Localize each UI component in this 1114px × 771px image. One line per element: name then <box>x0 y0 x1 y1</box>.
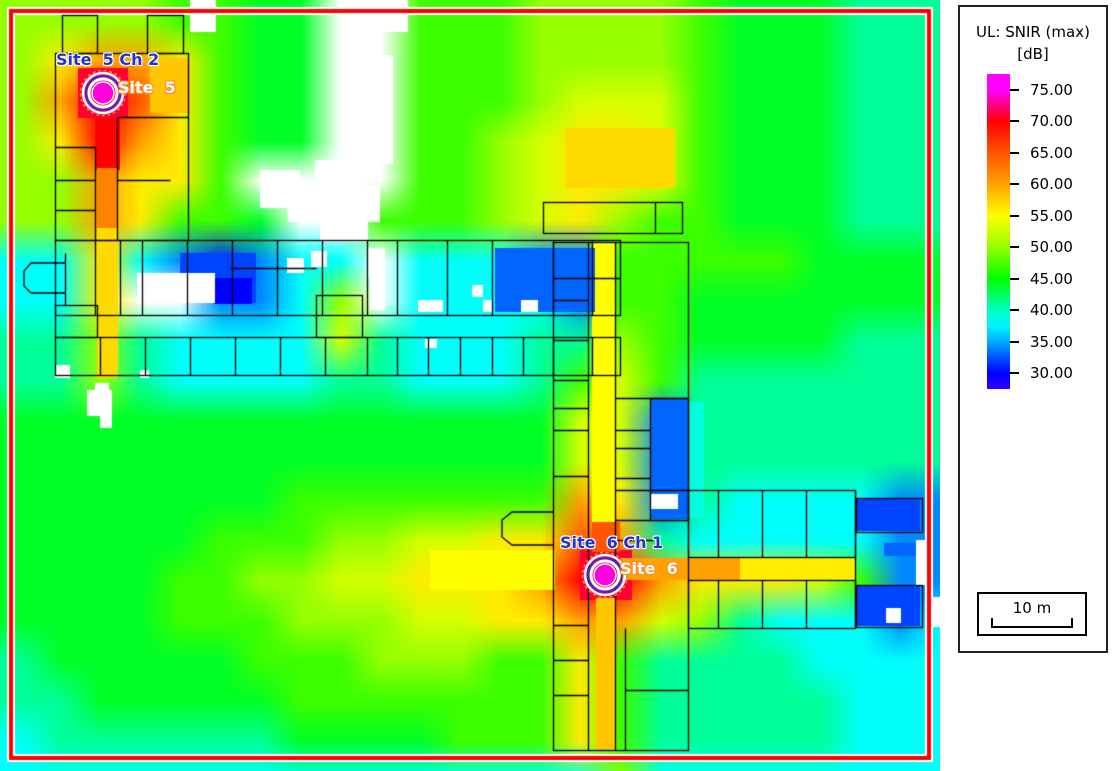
legend-tick-label: 70.00 <box>1030 112 1090 130</box>
legend-tick-mark <box>1010 309 1019 311</box>
legend-tick-mark <box>1010 89 1019 91</box>
legend-title: UL: SNIR (max) <box>960 23 1106 41</box>
legend-tick-mark <box>1010 183 1019 185</box>
scale-bar-label: 10 m <box>979 599 1085 617</box>
legend-tick-mark <box>1010 215 1019 217</box>
scale-bar-box: 10 m <box>977 592 1087 636</box>
legend-units: [dB] <box>960 45 1106 63</box>
legend-tick-label: 45.00 <box>1030 270 1090 288</box>
site-6-channel-label: Site 6 Ch 1 <box>560 535 663 551</box>
legend-panel: UL: SNIR (max) [dB] 75.0070.0065.0060.00… <box>958 5 1108 653</box>
coverage-heatmap-canvas[interactable] <box>0 0 940 771</box>
site-6-name-label: Site 6 <box>620 561 678 577</box>
legend-tick-mark <box>1010 120 1019 122</box>
legend-tick-label: 55.00 <box>1030 207 1090 225</box>
legend-tick-mark <box>1010 278 1019 280</box>
legend-colorbar <box>987 74 1010 389</box>
coverage-map[interactable]: Site 5 Ch 2 Site 5 Site 6 Ch 1 Site 6 <box>0 0 940 771</box>
scale-bar-bracket <box>991 618 1073 628</box>
site-5-name-label: Site 5 <box>118 80 176 96</box>
legend-tick-mark <box>1010 372 1019 374</box>
legend-tick-label: 30.00 <box>1030 364 1090 382</box>
legend-tick-label: 60.00 <box>1030 175 1090 193</box>
legend-tick-mark <box>1010 246 1019 248</box>
legend-tick-mark <box>1010 152 1019 154</box>
legend-tick-label: 65.00 <box>1030 144 1090 162</box>
site-5-channel-label: Site 5 Ch 2 <box>56 52 159 68</box>
legend-tick-label: 50.00 <box>1030 238 1090 256</box>
app-root: Site 5 Ch 2 Site 5 Site 6 Ch 1 Site 6 UL… <box>0 0 1114 771</box>
legend-tick-label: 40.00 <box>1030 301 1090 319</box>
legend-tick-label: 35.00 <box>1030 333 1090 351</box>
legend-tick-mark <box>1010 341 1019 343</box>
legend-tick-label: 75.00 <box>1030 81 1090 99</box>
